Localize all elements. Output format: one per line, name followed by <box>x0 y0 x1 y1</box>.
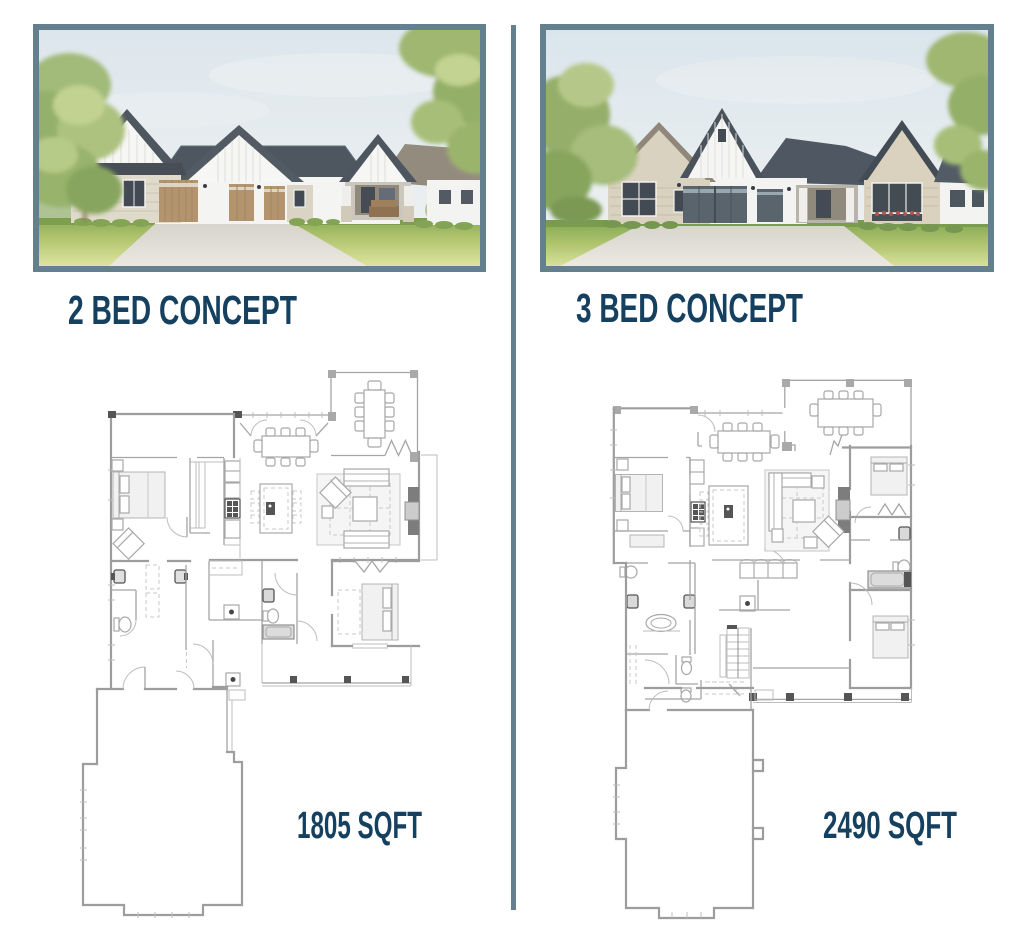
svg-text:3 BED CONCEPT: 3 BED CONCEPT <box>576 285 803 331</box>
svg-text:2 BED CONCEPT: 2 BED CONCEPT <box>68 287 297 333</box>
